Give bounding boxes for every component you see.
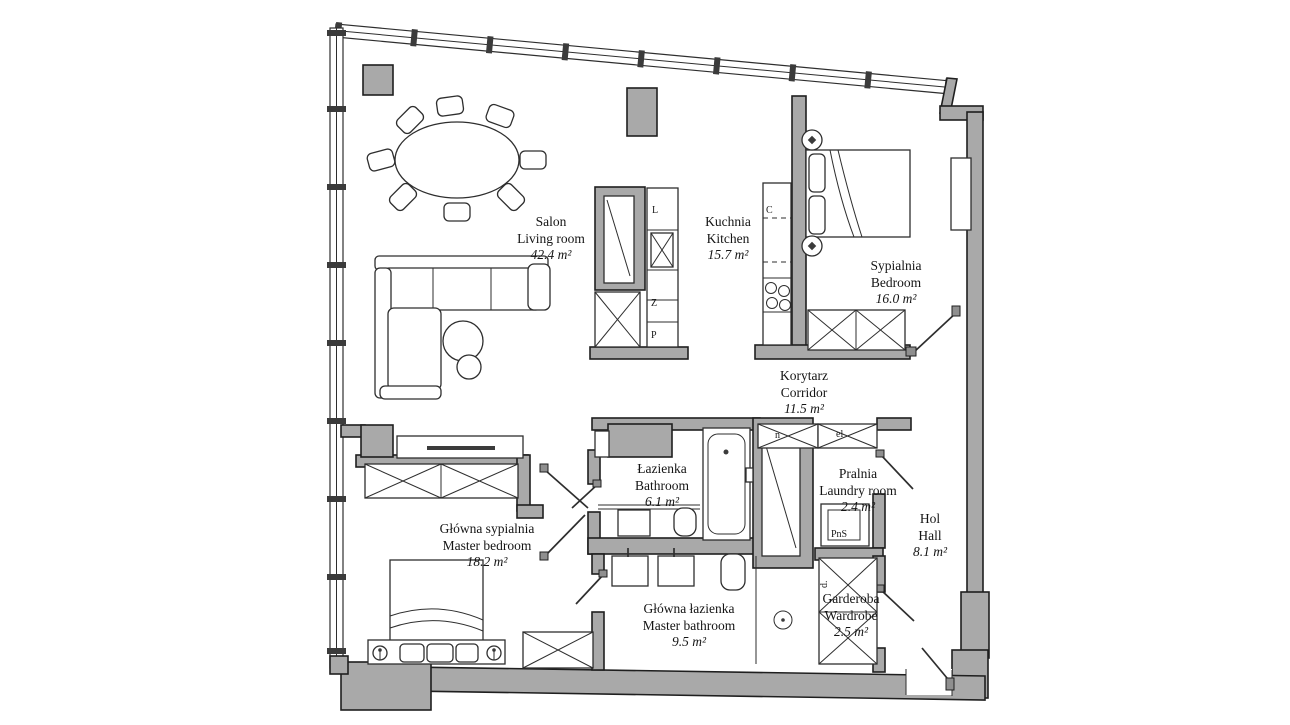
label-corridor: Korytarz Corridor 11.5 m² [780, 368, 828, 418]
label-laundry: Pralnia Laundry room 2.4 m² [819, 466, 897, 516]
master-bathroom-door [576, 570, 607, 604]
room-area: 6.1 m² [635, 494, 689, 511]
room-name-pl: Garderoba [823, 591, 880, 608]
room-area: 18.2 m² [440, 554, 535, 571]
room-name-pl: Łazienka [635, 461, 689, 478]
electrical-tag: el [836, 430, 843, 440]
bedroom-bed [806, 150, 910, 237]
bench [595, 431, 609, 457]
toilet [721, 554, 745, 590]
room-area: 11.5 m² [780, 401, 828, 418]
entrance-door [906, 648, 954, 696]
room-name-en: Bathroom [635, 478, 689, 495]
bathroom-toilet [674, 508, 696, 536]
room-name-pl: Hol [913, 511, 947, 528]
bedroom-door [906, 306, 960, 356]
room-area: 9.5 m² [643, 634, 736, 651]
label-living-room: Salon Living room 42.4 m² [517, 214, 585, 264]
coffee-tables [443, 321, 483, 379]
room-name-en: Master bedroom [440, 538, 535, 555]
room-name-pl: Pralnia [819, 466, 897, 483]
label-kitchen: Kuchnia Kitchen 15.7 m² [705, 214, 751, 264]
oven-tag: P [651, 331, 657, 341]
room-name-pl: Korytarz [780, 368, 828, 385]
label-bathroom: Łazienka Bathroom 6.1 m² [635, 461, 689, 511]
master-wardrobe [365, 464, 518, 498]
window-wall-top [335, 22, 954, 96]
floor-plan: Salon Living room 42.4 m² Kuchnia Kitche… [0, 0, 1290, 725]
room-area: 15.7 m² [705, 247, 751, 264]
room-name-en: Wardrobe [823, 608, 880, 625]
room-name-en: Living room [517, 231, 585, 248]
label-master-bathroom: Główna łazienka Master bathroom 9.5 m² [643, 601, 736, 651]
wardrobe-door [876, 585, 914, 621]
room-name-pl: Kuchnia [705, 214, 751, 231]
room-name-en: Bedroom [871, 275, 922, 292]
room-area: 42.4 m² [517, 247, 585, 264]
label-hall: Hol Hall 8.1 m² [913, 511, 947, 561]
sink [658, 556, 694, 586]
column [627, 88, 657, 136]
label-master-bedroom: Główna sypialnia Master bedroom 18.2 m² [440, 521, 535, 571]
room-name-en: Kitchen [705, 231, 751, 248]
window-wall-left [327, 28, 346, 668]
room-area: 2.5 m² [823, 624, 880, 641]
room-name-en: Laundry room [819, 483, 897, 500]
room-name-pl: Główna sypialnia [440, 521, 535, 538]
sink [612, 556, 648, 586]
bathroom-door [572, 480, 601, 508]
niche-tag: n [775, 431, 780, 441]
room-area: 8.1 m² [913, 544, 947, 561]
tv-cabinet [397, 436, 523, 458]
label-wardrobe: Garderoba Wardrobe 2.5 m² [823, 591, 880, 641]
label-bedroom: Sypialnia Bedroom 16.0 m² [871, 258, 922, 308]
duct-tag: d. [820, 581, 830, 589]
dining-table [366, 95, 546, 221]
room-area: 2.4 m² [819, 499, 897, 516]
room-area: 16.0 m² [871, 291, 922, 308]
bathroom-sink [618, 510, 650, 536]
washer-tag: PnS [831, 530, 847, 540]
room-name-en: Master bathroom [643, 618, 736, 635]
master-bedroom-double-door [540, 464, 588, 560]
master-bed [368, 560, 505, 664]
room-name-en: Corridor [780, 385, 828, 402]
bedroom-wardrobe [808, 310, 905, 350]
room-name-pl: Sypialnia [871, 258, 922, 275]
shower-tray [608, 424, 672, 457]
bathtub [703, 428, 753, 540]
cooker-tag: C [766, 206, 773, 216]
column [363, 65, 393, 95]
room-name-en: Hall [913, 528, 947, 545]
dresser [523, 632, 593, 668]
fridge-tag: L [652, 206, 658, 216]
dishwasher-tag: Z [651, 299, 657, 309]
bedroom-sideboard [951, 158, 971, 230]
room-name-pl: Salon [517, 214, 585, 231]
column [361, 425, 393, 457]
room-name-pl: Główna łazienka [643, 601, 736, 618]
